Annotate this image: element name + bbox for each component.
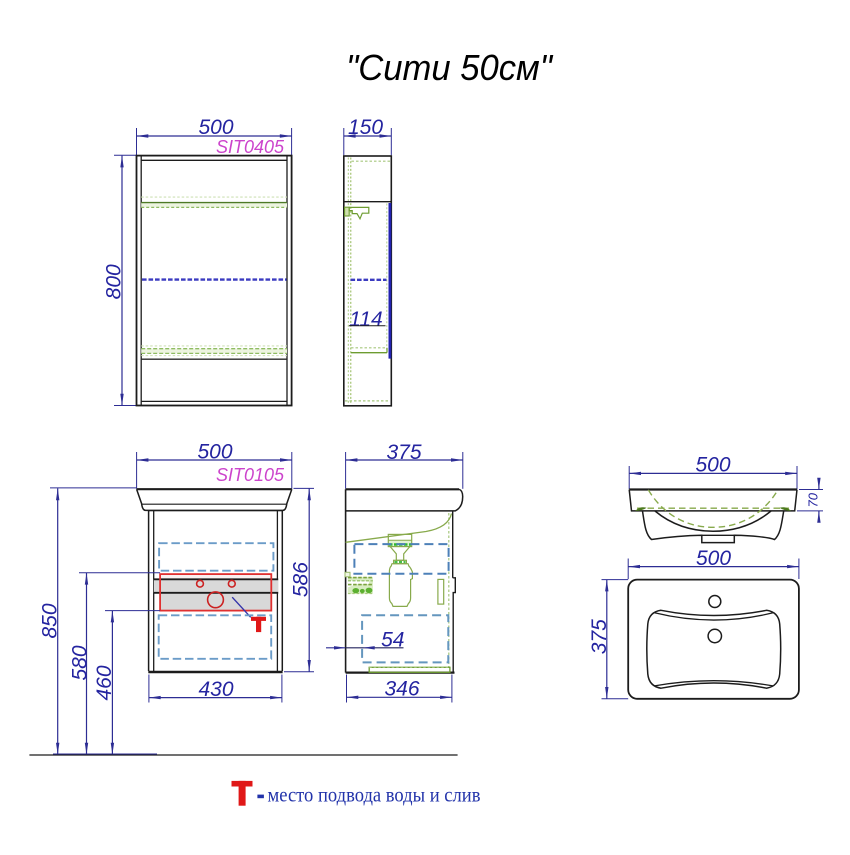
svg-text:114: 114 [349,308,382,331]
svg-text:346: 346 [384,678,419,701]
svg-text:850: 850 [39,603,62,638]
svg-text:150: 150 [348,116,383,139]
svg-text:"Сити 50см": "Сити 50см" [346,47,554,88]
svg-text:375: 375 [588,619,611,654]
svg-text:70: 70 [805,492,820,507]
svg-text:500: 500 [695,454,730,477]
svg-text:500: 500 [197,441,232,464]
svg-text:586: 586 [290,562,313,597]
svg-text:430: 430 [198,678,233,701]
svg-text:800: 800 [103,264,126,299]
svg-text:SIT0405: SIT0405 [216,137,285,157]
svg-text:500: 500 [198,116,233,139]
svg-text:место подвода воды и слив: место подвода воды и слив [268,783,481,807]
svg-text:54: 54 [381,629,404,652]
svg-text:460: 460 [93,665,116,700]
svg-text:SIT0105: SIT0105 [216,465,285,485]
svg-text:500: 500 [696,547,731,570]
svg-text:580: 580 [69,645,92,680]
svg-text:375: 375 [386,441,421,464]
